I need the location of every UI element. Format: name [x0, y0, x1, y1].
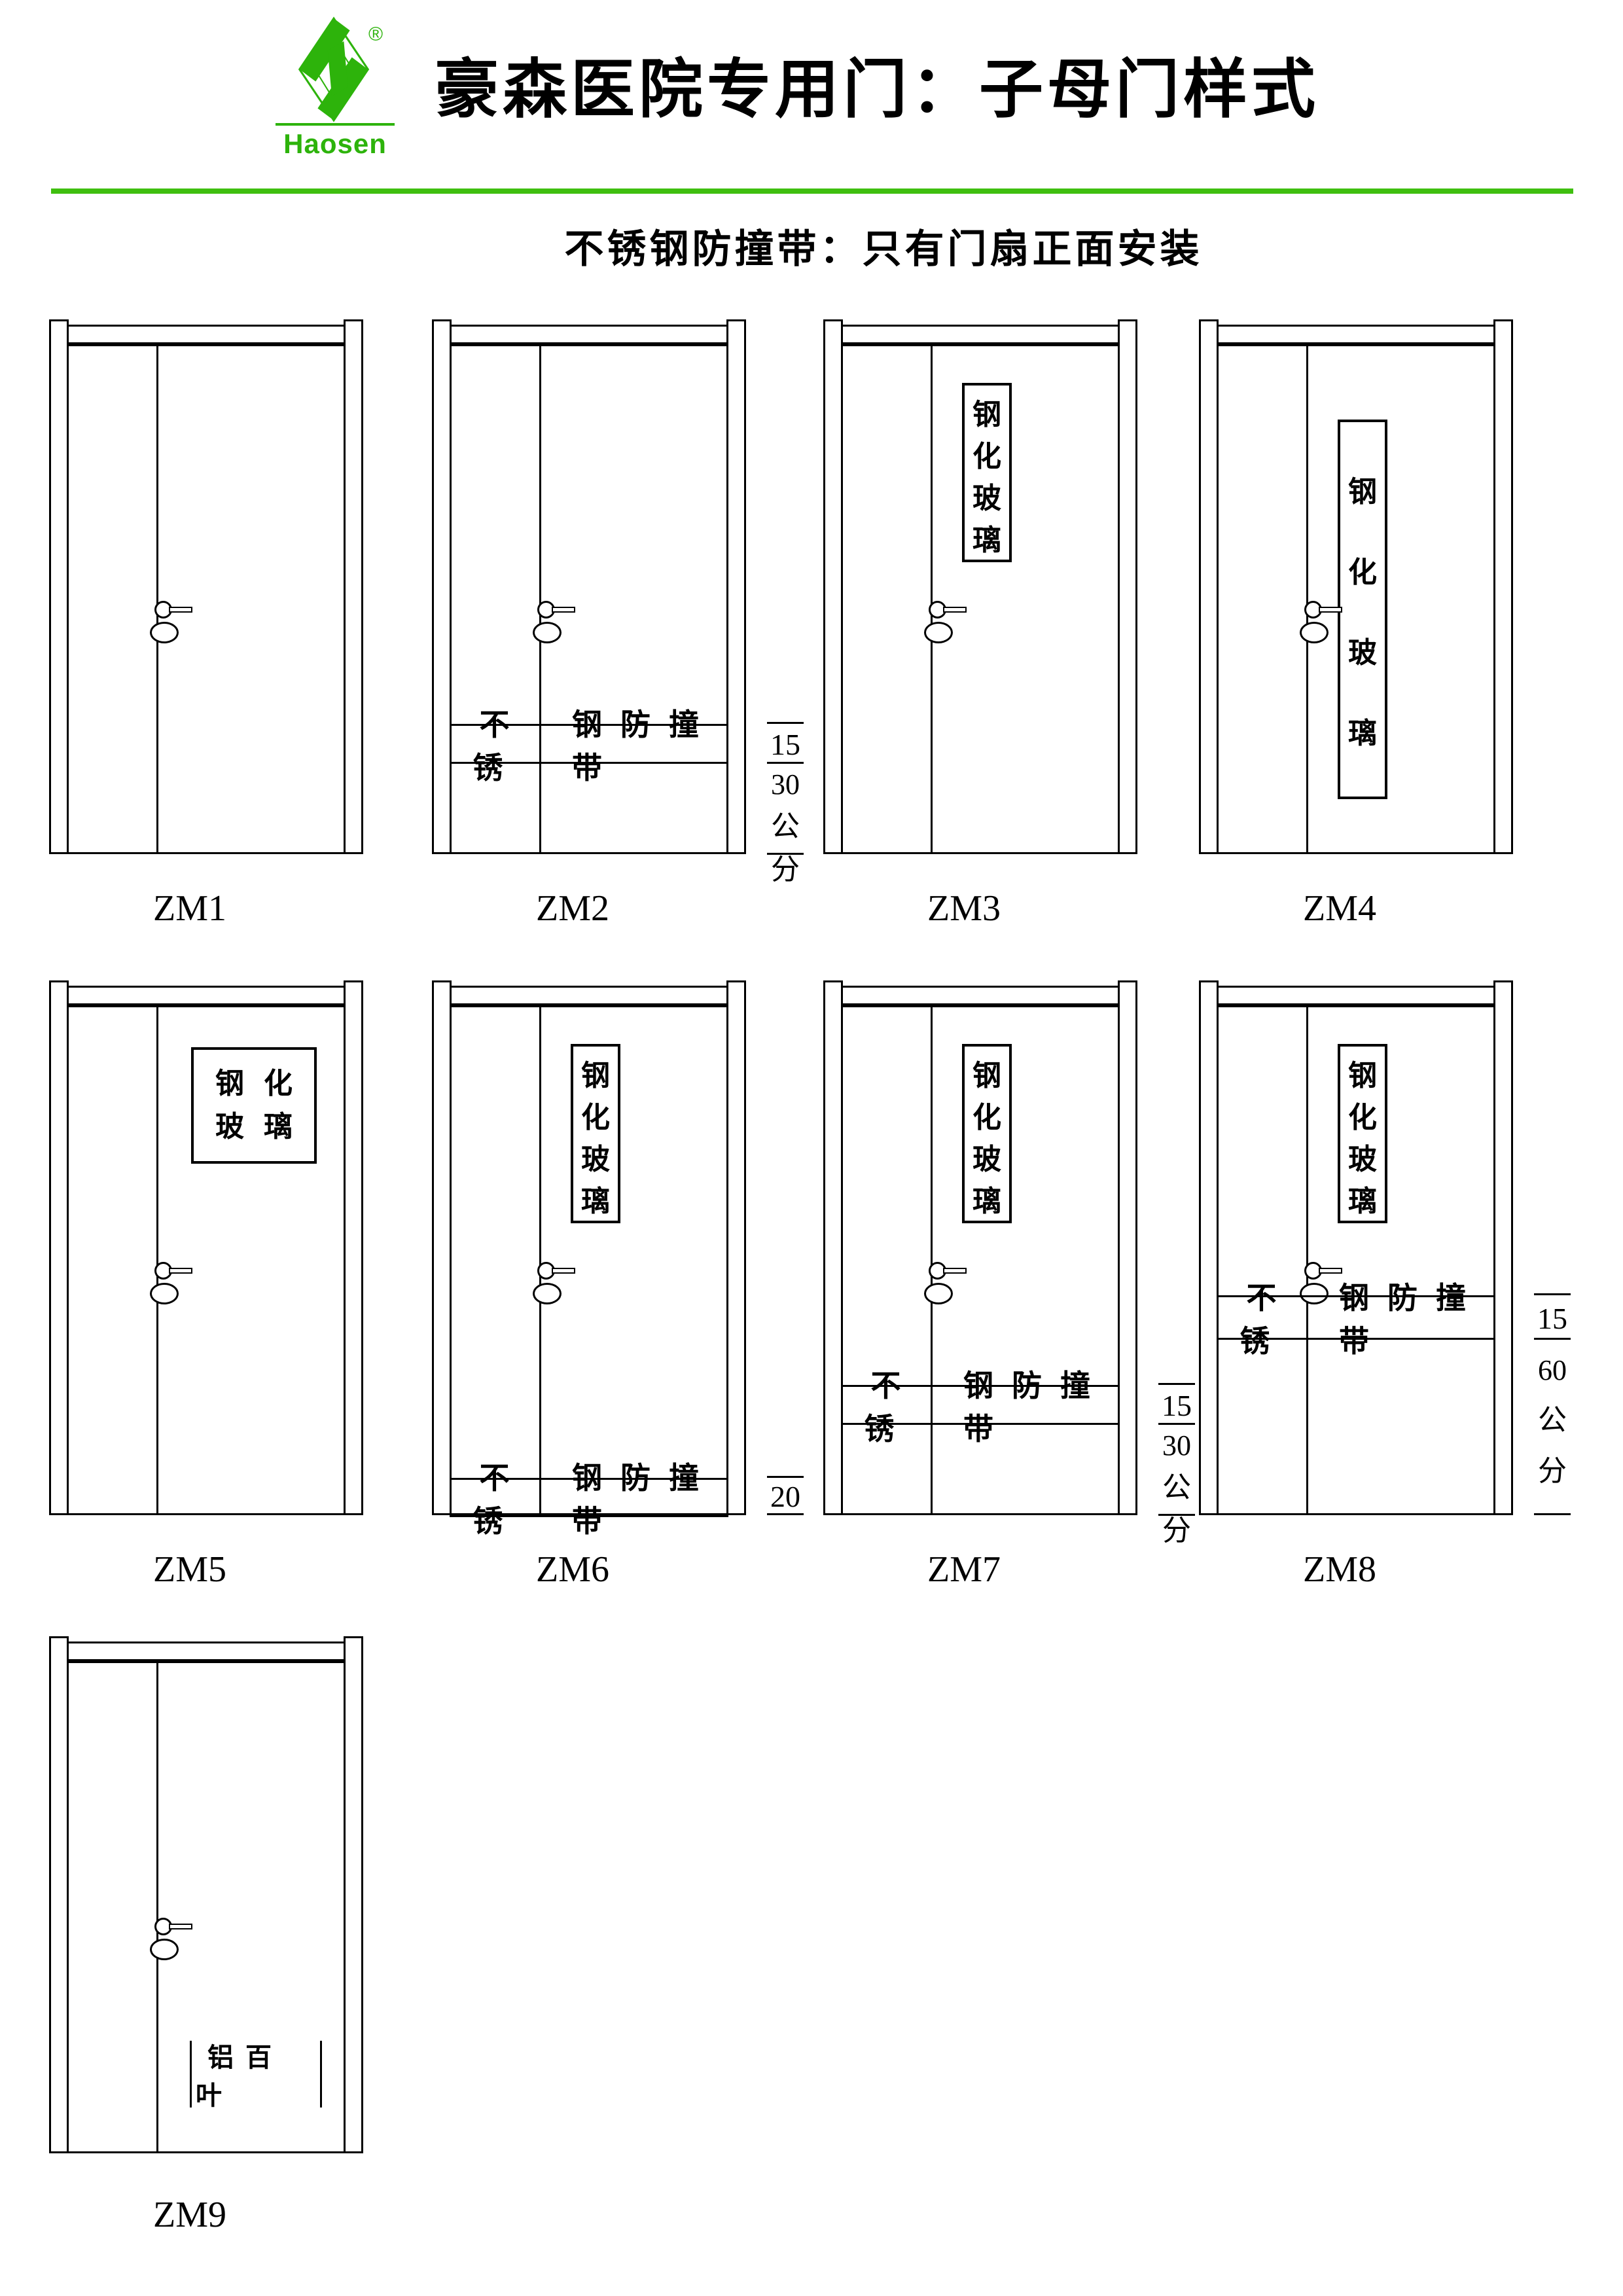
door-frame-right-post — [1493, 319, 1513, 854]
dimension-number: 60 — [1538, 1354, 1567, 1387]
glass-label-char: 钢 — [972, 1052, 1001, 1094]
glass-label-char: 璃 — [1348, 709, 1377, 751]
strip-label-right: 钢防撞带 — [931, 1362, 1120, 1448]
page-subtitle: 不锈钢防撞带：只有门扇正面安装 — [406, 217, 1361, 274]
dimension-value-offset: 30 公 分 — [768, 768, 802, 888]
door-leaves: 钢化 玻璃 — [67, 1005, 346, 1515]
door-frame-lintel — [450, 986, 728, 1005]
door-label: ZM9 — [49, 2194, 330, 2236]
door-frame-right-post — [344, 1636, 363, 2153]
spec-sheet-page: ® Haosen 豪森医院专用门：子母门样式 不锈钢防撞带：只有门扇正面安装 Z… — [0, 0, 1623, 2296]
door-frame-right-post — [1118, 319, 1137, 854]
dimension-tick — [767, 762, 804, 764]
dimension-value-strip-height: 20 — [768, 1479, 802, 1514]
glass-label-char: 化 — [972, 433, 1001, 475]
door-frame-lintel — [67, 1641, 346, 1661]
page-title: 豪森医院专用门：子母门样式 — [406, 45, 1348, 136]
dimension-value-strip-height: 15 — [768, 727, 802, 762]
dimension-value-strip-height: 15 — [1535, 1301, 1569, 1336]
door-label: ZM7 — [823, 1549, 1105, 1590]
door-leaves: 钢 化 玻 璃 — [1217, 344, 1495, 854]
haosen-logo: ® Haosen — [272, 10, 402, 168]
glass-label-char: 玻 — [1348, 629, 1377, 671]
door-leaves: 钢 化 玻 璃 不锈 钢防撞带 — [841, 1005, 1120, 1515]
handle-lever-icon — [552, 1268, 575, 1274]
dimension-annotation: 15 30 公 分 — [1160, 1383, 1194, 1517]
door-label: ZM3 — [823, 888, 1105, 929]
dimension-annotation: 15 60 公 分 — [1535, 1293, 1569, 1515]
glass-label-char: 玻 — [1348, 1136, 1377, 1177]
strip-label-left: 不锈 — [841, 1362, 931, 1448]
door-label: ZM5 — [49, 1549, 330, 1590]
handle-lever-icon — [169, 607, 192, 613]
dimension-tick — [1534, 1513, 1571, 1515]
strip-label-left: 不锈 — [450, 1454, 539, 1541]
anti-collision-strip: 不锈 钢防撞带 — [841, 1385, 1120, 1425]
door-leaves: 钢 化 玻 璃 不锈 钢防撞带 — [1217, 1005, 1495, 1515]
handle-lever-icon — [169, 1924, 192, 1929]
dimension-tick — [1158, 1383, 1195, 1385]
door-leaves: 钢 化 玻 璃 不锈 钢防撞带 — [450, 1005, 728, 1515]
glass-label-char: 玻 — [972, 1136, 1001, 1177]
dimension-unit-char: 分 — [1538, 1447, 1567, 1489]
door-leaves — [67, 344, 346, 854]
leaf-divider — [156, 1007, 158, 1513]
strip-label-right: 钢防撞带 — [539, 701, 728, 787]
door-label: ZM2 — [432, 888, 713, 929]
dimension-tick — [1534, 1293, 1571, 1295]
handle-lever-icon — [169, 1268, 192, 1274]
dimension-tick — [767, 722, 804, 724]
tempered-glass-panel: 钢化 玻璃 — [191, 1047, 317, 1164]
door-frame-lintel — [67, 986, 346, 1005]
lock-cylinder-icon — [150, 622, 179, 643]
glass-label-char: 璃 — [1348, 1177, 1377, 1219]
dimension-number: 30 — [1162, 1429, 1191, 1462]
glass-label-char: 璃 — [581, 1177, 610, 1219]
tempered-glass-panel: 钢 化 玻 璃 — [962, 383, 1012, 562]
glass-label-char: 钢 — [1348, 468, 1377, 510]
glass-label-char: 钢 — [581, 1052, 610, 1094]
handle-lever-icon — [1319, 607, 1342, 613]
glass-label-line: 钢化 — [215, 1062, 312, 1105]
brand-name: Haosen — [272, 128, 399, 160]
door-frame-right-post — [1493, 980, 1513, 1515]
door-frame-left-post — [432, 980, 452, 1515]
handle-lever-icon — [1319, 1268, 1342, 1274]
dimension-value-offset: 30 公 分 — [1160, 1429, 1194, 1549]
door-frame-right-post — [344, 980, 363, 1515]
door-frame-right-post — [1118, 980, 1137, 1515]
dimension-unit-char: 公 — [771, 802, 800, 844]
door-frame-right-post — [726, 319, 746, 854]
lock-cylinder-icon — [533, 622, 562, 643]
door-label: ZM6 — [432, 1549, 713, 1590]
diamond-logo-icon — [296, 16, 371, 123]
dimension-unit-char: 公 — [1538, 1396, 1567, 1438]
leaf-divider — [156, 1663, 158, 2151]
lock-cylinder-icon — [1300, 622, 1329, 643]
strip-label-right: 钢防撞带 — [1306, 1274, 1495, 1361]
leaf-divider — [539, 1007, 541, 1513]
door-frame-left-post — [823, 980, 843, 1515]
door-leaves: 钢 化 玻 璃 — [841, 344, 1120, 854]
glass-label-char: 化 — [1348, 548, 1377, 590]
handle-lever-icon — [943, 607, 967, 613]
strip-label-right: 钢防撞带 — [539, 1454, 728, 1541]
dimension-unit-char: 公 — [1162, 1463, 1191, 1505]
lock-cylinder-icon — [924, 1283, 953, 1304]
handle-lever-icon — [943, 1268, 967, 1274]
tempered-glass-panel: 钢 化 玻 璃 — [1338, 1044, 1387, 1223]
strip-label-left: 不锈 — [1217, 1274, 1306, 1361]
dimension-annotation: 15 30 公 分 — [768, 722, 802, 856]
dimension-value-offset: 60 公 分 — [1535, 1354, 1569, 1489]
glass-label-line: 玻璃 — [215, 1105, 312, 1149]
glass-label-char: 璃 — [972, 1177, 1001, 1219]
registered-trademark-icon: ® — [368, 24, 383, 46]
door-frame-left-post — [49, 1636, 69, 2153]
door-frame-right-post — [726, 980, 746, 1515]
leaf-divider — [1306, 1007, 1308, 1513]
dimension-tick — [767, 1476, 804, 1478]
logo-underline — [276, 123, 395, 126]
door-frame-left-post — [1199, 980, 1219, 1515]
glass-label-char: 化 — [1348, 1094, 1377, 1136]
dimension-number: 30 — [771, 768, 800, 801]
door-frame-lintel — [450, 325, 728, 344]
door-frame-left-post — [823, 319, 843, 854]
door-frame-left-post — [1199, 319, 1219, 854]
door-frame-lintel — [841, 325, 1120, 344]
dimension-unit-char: 分 — [771, 846, 800, 888]
door-label: ZM1 — [49, 888, 330, 929]
door-label: ZM8 — [1199, 1549, 1480, 1590]
door-leaves: 铝百叶 — [67, 1661, 346, 2153]
lock-cylinder-icon — [924, 622, 953, 643]
lock-cylinder-icon — [150, 1939, 179, 1960]
anti-collision-strip: 不锈 钢防撞带 — [450, 1478, 728, 1517]
tempered-glass-panel: 钢 化 玻 璃 — [1338, 420, 1387, 799]
dimension-unit-char: 分 — [1162, 1507, 1191, 1549]
lock-cylinder-icon — [150, 1283, 179, 1304]
door-frame-lintel — [1217, 325, 1495, 344]
door-frame-lintel — [841, 986, 1120, 1005]
glass-label-char: 璃 — [972, 516, 1001, 558]
dimension-tick — [1534, 1338, 1571, 1340]
door-frame-left-post — [432, 319, 452, 854]
door-label: ZM4 — [1199, 888, 1480, 929]
door-leaves: 不锈 钢防撞带 — [450, 344, 728, 854]
door-frame-right-post — [344, 319, 363, 854]
leaf-divider — [156, 346, 158, 852]
glass-label-char: 钢 — [972, 391, 1001, 433]
glass-label-char: 玻 — [972, 475, 1001, 516]
tempered-glass-panel: 钢 化 玻 璃 — [571, 1044, 620, 1223]
header-divider — [51, 188, 1573, 194]
aluminum-louver-panel: 铝百叶 — [190, 2041, 322, 2108]
louver-label: 铝百叶 — [192, 2036, 320, 2112]
glass-label-char: 玻 — [581, 1136, 610, 1177]
handle-lever-icon — [552, 607, 575, 613]
glass-label-char: 钢 — [1348, 1052, 1377, 1094]
door-frame-left-post — [49, 980, 69, 1515]
tempered-glass-panel: 钢 化 玻 璃 — [962, 1044, 1012, 1223]
strip-label-left: 不锈 — [450, 701, 539, 787]
anti-collision-strip: 不锈 钢防撞带 — [450, 724, 728, 764]
dimension-tick — [1158, 1423, 1195, 1425]
door-frame-left-post — [49, 319, 69, 854]
door-frame-lintel — [67, 325, 346, 344]
dimension-value-strip-height: 15 — [1160, 1388, 1194, 1423]
glass-label-char: 化 — [581, 1094, 610, 1136]
anti-collision-strip: 不锈 钢防撞带 — [1217, 1295, 1495, 1340]
dimension-annotation: 20 — [768, 1476, 802, 1515]
glass-label-char: 化 — [972, 1094, 1001, 1136]
leaf-divider — [1306, 346, 1308, 852]
lock-cylinder-icon — [533, 1283, 562, 1304]
leaf-divider — [931, 346, 933, 852]
door-frame-lintel — [1217, 986, 1495, 1005]
